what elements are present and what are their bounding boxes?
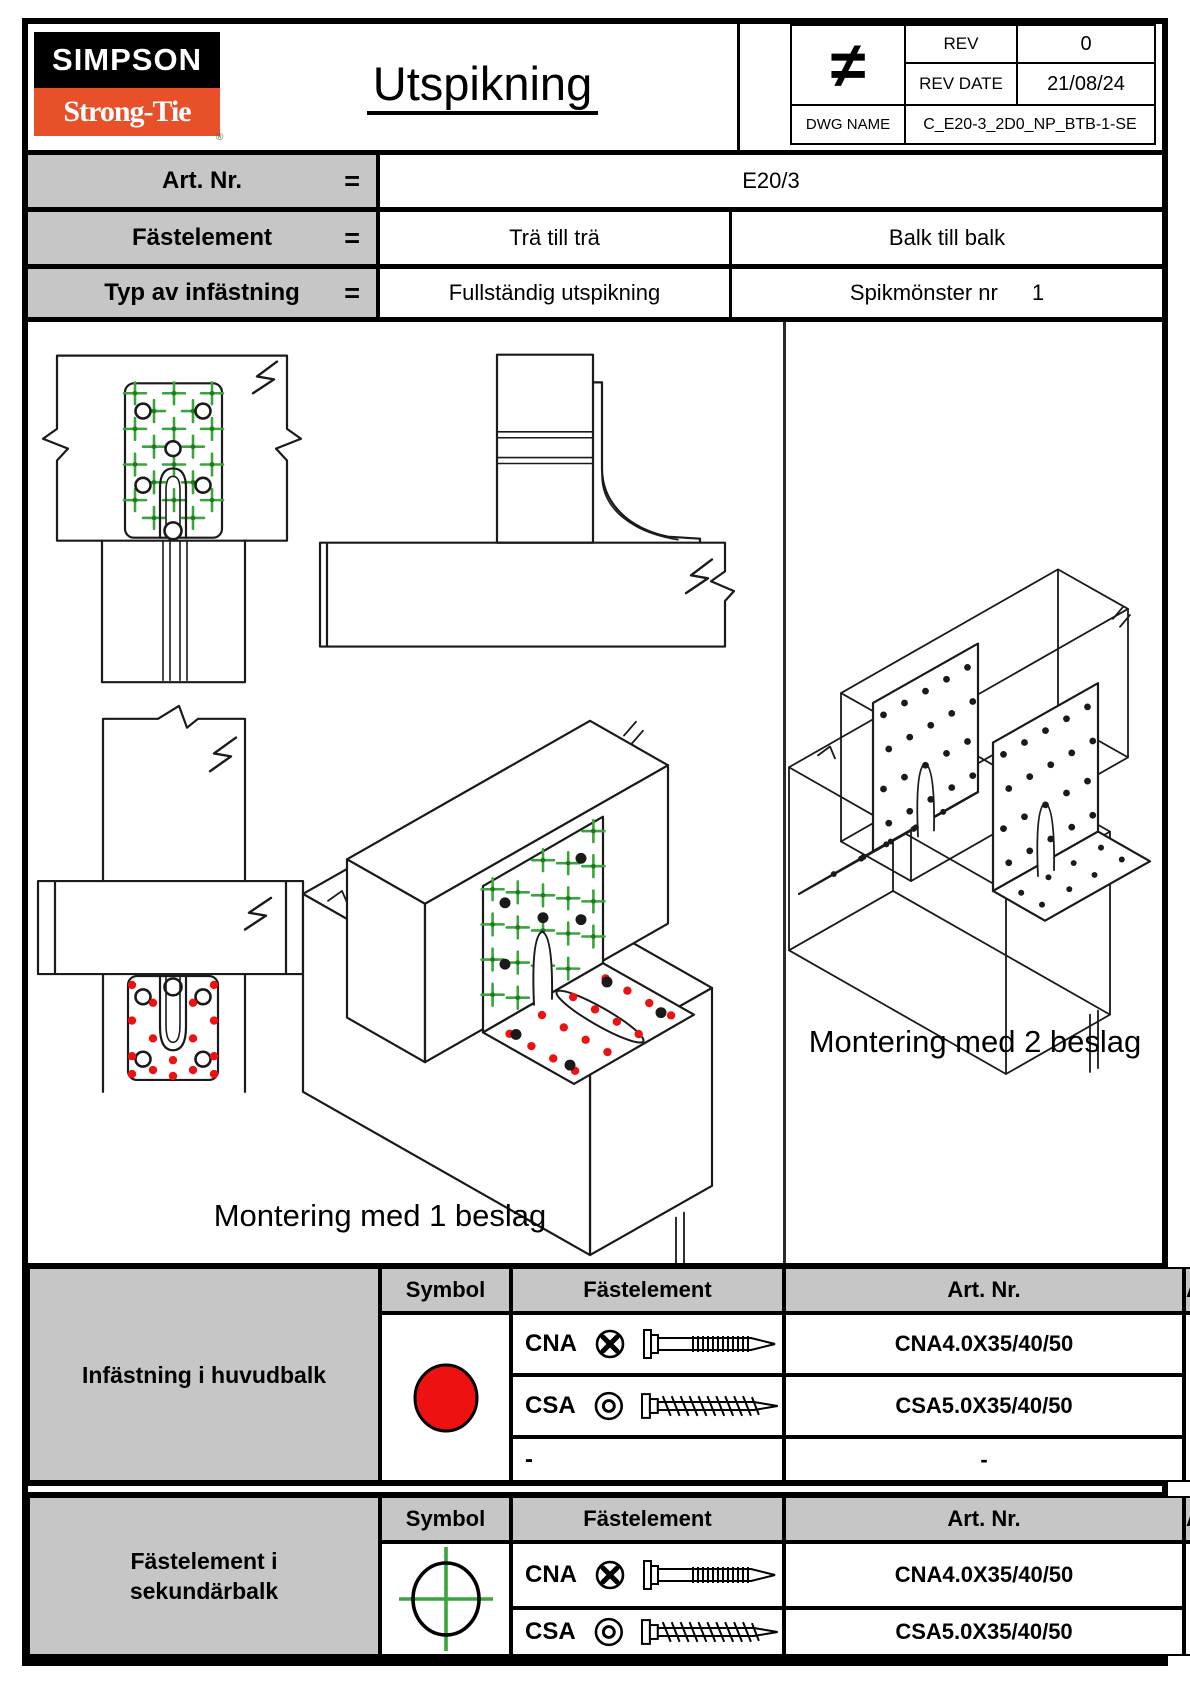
art-nr-value: E20/3 bbox=[380, 155, 1162, 207]
front-view-2d bbox=[43, 356, 301, 683]
cna-head-icon bbox=[593, 1327, 627, 1361]
qty-main-beam: 16 bbox=[1184, 1313, 1190, 1482]
col-symbol: Symbol bbox=[380, 1496, 511, 1542]
simpson-strongtie-logo: SIMPSON Strong-Tie ® bbox=[28, 24, 228, 150]
col-qty: Antal bbox=[1184, 1267, 1190, 1313]
green-crosshair-symbol-icon bbox=[391, 1545, 501, 1653]
technical-drawing bbox=[28, 322, 1162, 1263]
drawing-area: Montering med 1 beslag Montering med 2 b… bbox=[28, 322, 1162, 1263]
fastener-row-csa: CSA bbox=[511, 1608, 784, 1656]
side-view-2d bbox=[320, 355, 734, 647]
art-nr-cna: CNA4.0X35/40/50 bbox=[784, 1313, 1184, 1375]
col-fastener: Fästelement bbox=[511, 1267, 784, 1313]
csa-screw-icon bbox=[641, 1389, 782, 1423]
art-nr-csa: CSA5.0X35/40/50 bbox=[784, 1375, 1184, 1437]
table-secondary-beam-fasteners: Fästelement i sekundärbalk Symbol Fästel… bbox=[28, 1492, 1162, 1660]
nail-pattern-cell: Spikmönster nr 1 bbox=[732, 269, 1162, 317]
panel-divider bbox=[783, 322, 786, 1263]
fastener-row-cna: CNA bbox=[511, 1313, 784, 1375]
caption-one-bracket: Montering med 1 beslag bbox=[150, 1194, 610, 1237]
cna-screw-icon bbox=[643, 1327, 781, 1361]
secondary-beam-symbol-cell bbox=[380, 1542, 511, 1656]
logo-simpson: SIMPSON bbox=[34, 32, 220, 88]
rev-date-label: REV DATE bbox=[904, 62, 1018, 106]
col-symbol: Symbol bbox=[380, 1267, 511, 1313]
csa-head-icon bbox=[592, 1615, 626, 1649]
art-nr-label-text: Art. Nr. bbox=[162, 167, 242, 195]
drawing-sheet: SIMPSON Strong-Tie ® Utspikning ≠ REV 0 … bbox=[0, 0, 1190, 1682]
rev-label: REV bbox=[904, 24, 1018, 64]
not-equal-stamp-icon: ≠ bbox=[790, 24, 906, 106]
csa-screw-icon bbox=[641, 1615, 782, 1649]
nail-pattern-number: 1 bbox=[1032, 280, 1044, 306]
equals-sign: = bbox=[344, 278, 360, 309]
art-nr-empty: - bbox=[784, 1437, 1184, 1482]
art-nr-cna: CNA4.0X35/40/50 bbox=[784, 1542, 1184, 1608]
row-fastener: Fästelement = Trä till trä Balk till bal… bbox=[28, 212, 1162, 269]
csa-name: CSA bbox=[525, 1618, 576, 1646]
title-area: Utspikning bbox=[228, 24, 737, 150]
col-fastener: Fästelement bbox=[511, 1496, 784, 1542]
equals-sign: = bbox=[344, 166, 360, 197]
fastener-label: Fästelement = bbox=[28, 212, 380, 264]
rev-date-value: 21/08/24 bbox=[1016, 62, 1156, 106]
nail-pattern-label: Spikmönster nr bbox=[850, 280, 998, 306]
fastener-left-value: Trä till trä bbox=[380, 212, 732, 264]
qty-secondary-beam: 24 bbox=[1184, 1542, 1190, 1656]
dwg-name-label: DWG NAME bbox=[790, 104, 906, 145]
iso-view-one-bracket bbox=[303, 721, 712, 1263]
row-art-nr: Art. Nr. = E20/3 bbox=[28, 155, 1162, 212]
fastener-right-value: Balk till balk bbox=[732, 212, 1162, 264]
cna-name: CNA bbox=[525, 1330, 577, 1358]
csa-name: CSA bbox=[525, 1392, 576, 1420]
fastener-row-empty: - bbox=[511, 1437, 784, 1482]
logo-strongtie: Strong-Tie bbox=[34, 88, 220, 136]
bracket-slot bbox=[160, 976, 186, 1050]
attachment-type-label: Typ av infästning = bbox=[28, 269, 380, 317]
rev-value: 0 bbox=[1016, 24, 1156, 64]
red-dot-symbol-icon bbox=[408, 1360, 484, 1436]
art-nr-csa: CSA5.0X35/40/50 bbox=[784, 1608, 1184, 1656]
art-nr-label: Art. Nr. = bbox=[28, 155, 380, 207]
cna-name: CNA bbox=[525, 1561, 577, 1589]
dwg-name-value: C_E20-3_2D0_NP_BTB-1-SE bbox=[904, 104, 1156, 145]
revision-block: ≠ REV 0 REV DATE 21/08/24 DWG NAME C_E20… bbox=[737, 24, 1162, 150]
iso-view-two-brackets bbox=[789, 569, 1150, 1074]
fastener-row-csa: CSA bbox=[511, 1375, 784, 1437]
col-art-nr: Art. Nr. bbox=[784, 1267, 1184, 1313]
attachment-type-value: Fullständig utspikning bbox=[380, 269, 732, 317]
csa-head-icon bbox=[592, 1389, 626, 1423]
caption-two-brackets: Montering med 2 beslag bbox=[790, 1020, 1160, 1063]
registered-mark: ® bbox=[216, 132, 223, 143]
title-block: SIMPSON Strong-Tie ® Utspikning ≠ REV 0 … bbox=[28, 24, 1162, 155]
bottom-view-2d bbox=[38, 706, 303, 1092]
cna-screw-icon bbox=[643, 1558, 781, 1592]
main-beam-symbol-cell bbox=[380, 1313, 511, 1482]
row-attachment-type: Typ av infästning = Fullständig utspikni… bbox=[28, 269, 1162, 322]
table-two-title: Fästelement i sekundärbalk bbox=[28, 1496, 380, 1656]
equals-sign: = bbox=[344, 223, 360, 254]
cna-head-icon bbox=[593, 1558, 627, 1592]
sheet-frame: SIMPSON Strong-Tie ® Utspikning ≠ REV 0 … bbox=[22, 18, 1168, 1666]
col-art-nr: Art. Nr. bbox=[784, 1496, 1184, 1542]
fastener-row-cna: CNA bbox=[511, 1542, 784, 1608]
table-main-beam-fasteners: Infästning i huvudbalk Symbol Fästelemen… bbox=[28, 1263, 1162, 1486]
fastener-label-text: Fästelement bbox=[132, 224, 272, 252]
attachment-type-label-text: Typ av infästning bbox=[104, 279, 300, 307]
page-title: Utspikning bbox=[367, 59, 598, 114]
table-one-title: Infästning i huvudbalk bbox=[28, 1267, 380, 1482]
col-qty: Antal bbox=[1184, 1496, 1190, 1542]
